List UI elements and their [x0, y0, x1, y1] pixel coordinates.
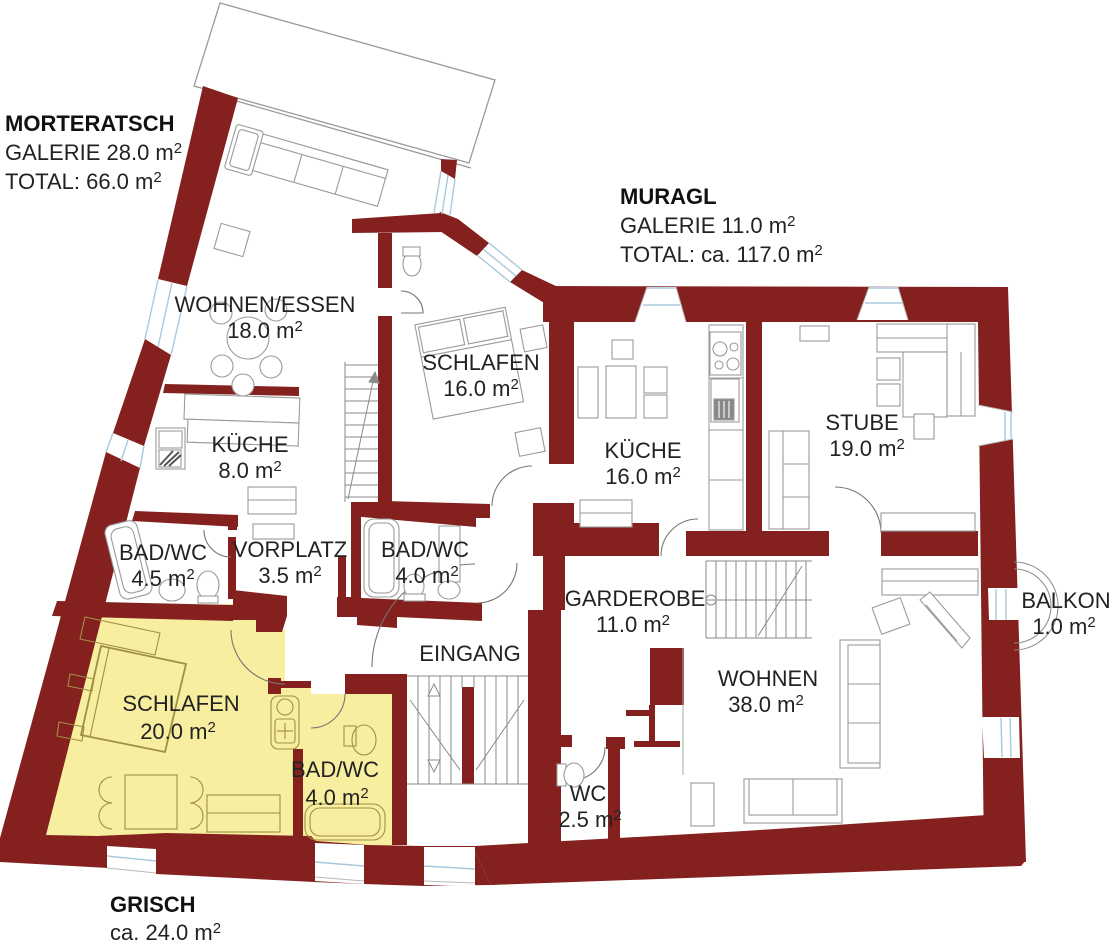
svg-text:TOTAL: ca. 117.0 m2: TOTAL: ca. 117.0 m2: [620, 242, 823, 267]
svg-text:TOTAL: 66.0 m2: TOTAL: 66.0 m2: [5, 169, 162, 194]
svg-text:KÜCHE: KÜCHE: [211, 432, 288, 457]
svg-text:WC: WC: [570, 781, 607, 806]
svg-text:20.0 m2: 20.0 m2: [140, 719, 216, 744]
svg-text:WOHNEN/ESSEN: WOHNEN/ESSEN: [175, 292, 356, 317]
svg-text:4.0 m2: 4.0 m2: [395, 563, 458, 588]
svg-text:VORPLATZ: VORPLATZ: [233, 537, 348, 562]
svg-text:GALERIE 11.0 m2: GALERIE 11.0 m2: [620, 213, 795, 238]
svg-text:8.0 m2: 8.0 m2: [218, 458, 281, 483]
svg-text:BAD/WC: BAD/WC: [291, 757, 379, 782]
svg-text:GARDEROBE: GARDEROBE: [565, 586, 706, 611]
svg-text:GALERIE 28.0 m2: GALERIE 28.0 m2: [5, 140, 182, 165]
svg-text:BAD/WC: BAD/WC: [119, 540, 207, 565]
svg-text:4.0 m2: 4.0 m2: [305, 785, 368, 810]
svg-text:2.5 m2: 2.5 m2: [558, 807, 621, 832]
svg-text:MORTERATSCH: MORTERATSCH: [5, 111, 174, 136]
svg-text:16.0 m2: 16.0 m2: [605, 464, 681, 489]
svg-text:STUBE: STUBE: [825, 410, 898, 435]
svg-text:1.0 m2: 1.0 m2: [1032, 614, 1095, 639]
svg-text:4.5 m2: 4.5 m2: [131, 566, 194, 591]
svg-text:GRISCH: GRISCH: [110, 892, 196, 917]
svg-text:EINGANG: EINGANG: [419, 641, 520, 666]
svg-text:KÜCHE: KÜCHE: [604, 438, 681, 463]
svg-text:BAD/WC: BAD/WC: [381, 537, 469, 562]
svg-text:3.5 m2: 3.5 m2: [258, 563, 321, 588]
svg-text:SCHLAFEN: SCHLAFEN: [422, 350, 539, 375]
svg-text:SCHLAFEN: SCHLAFEN: [122, 691, 239, 716]
svg-text:ca. 24.0 m2: ca. 24.0 m2: [110, 920, 221, 945]
svg-text:38.0 m2: 38.0 m2: [728, 692, 804, 717]
svg-text:11.0 m2: 11.0 m2: [596, 612, 670, 637]
svg-text:WOHNEN: WOHNEN: [718, 666, 818, 691]
svg-text:16.0 m2: 16.0 m2: [443, 376, 519, 401]
svg-text:19.0 m2: 19.0 m2: [829, 436, 905, 461]
svg-text:MURAGL: MURAGL: [620, 184, 717, 209]
svg-text:BALKON: BALKON: [1021, 588, 1110, 613]
svg-text:18.0 m2: 18.0 m2: [227, 318, 303, 343]
